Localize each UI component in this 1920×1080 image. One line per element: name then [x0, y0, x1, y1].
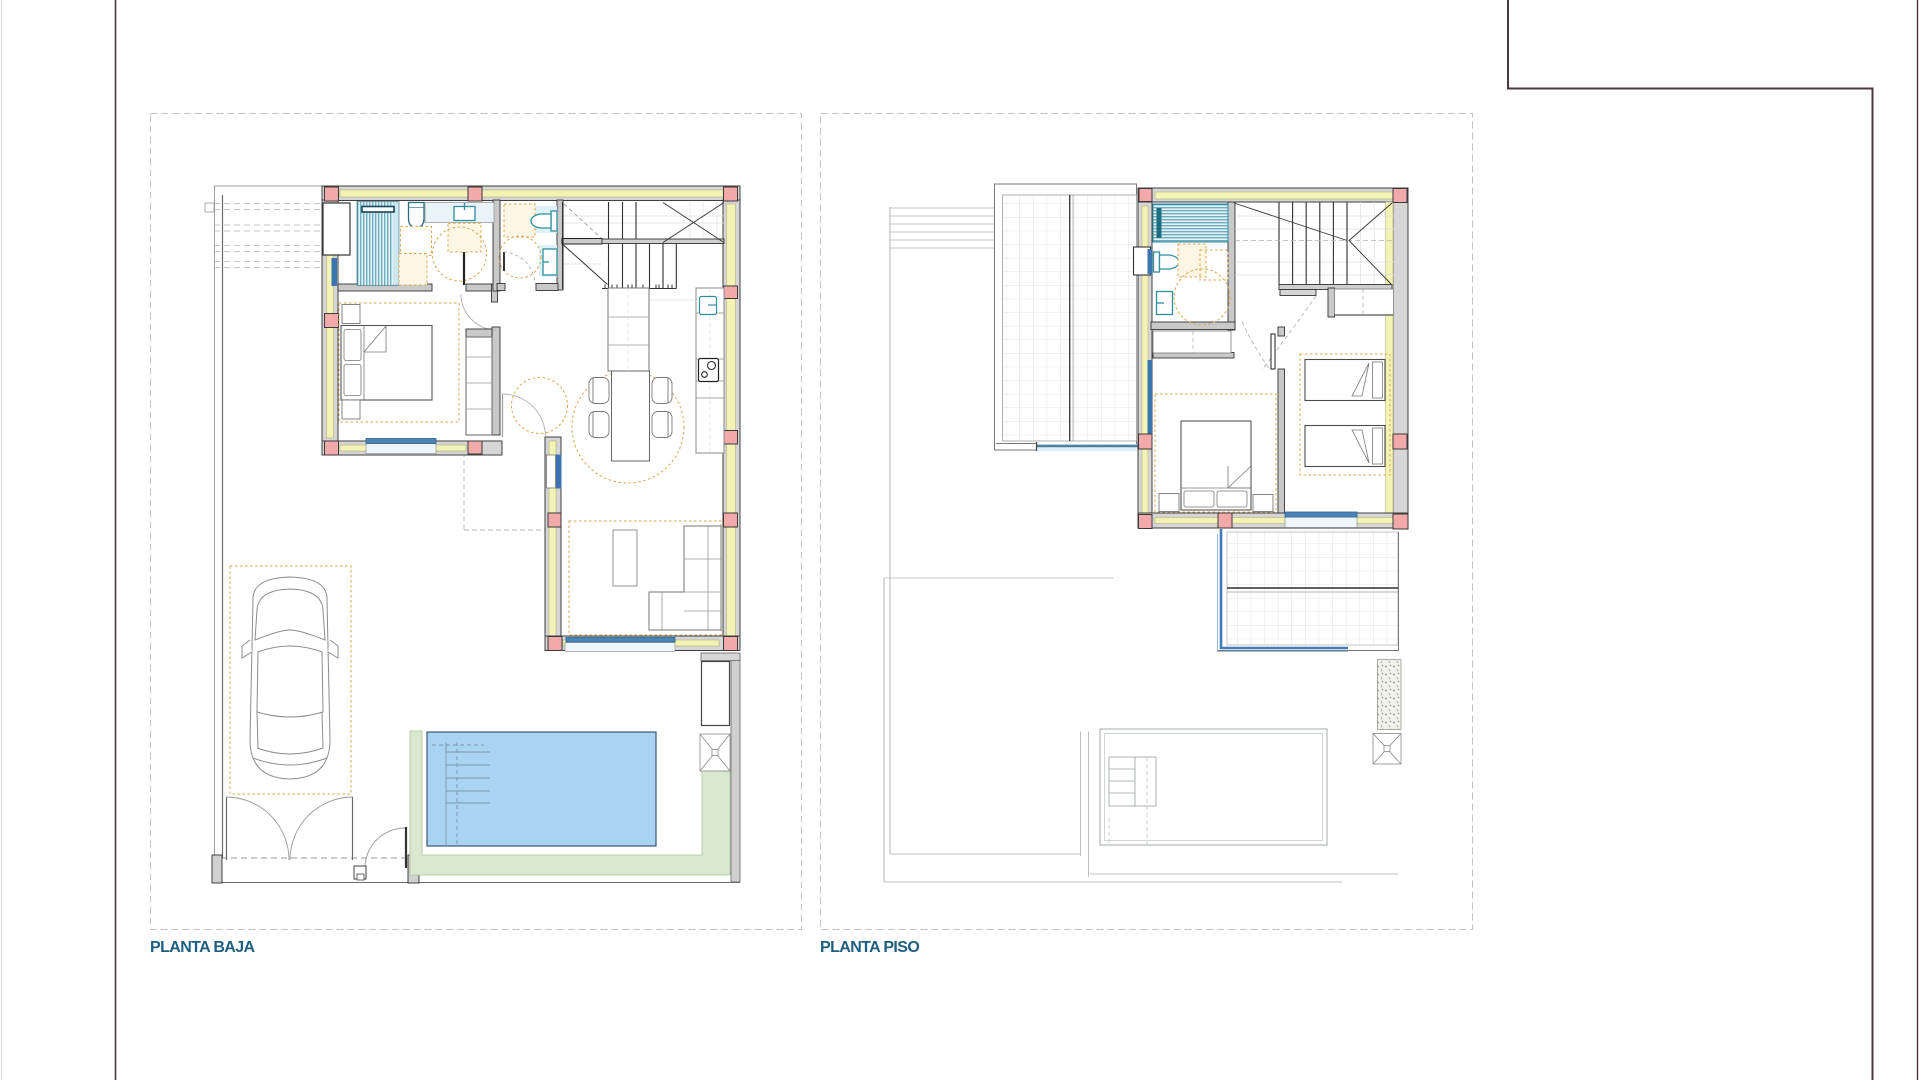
svg-text:PLANTA PISO: PLANTA PISO: [820, 939, 919, 956]
svg-text:PLANTA BAJA: PLANTA BAJA: [150, 939, 256, 956]
